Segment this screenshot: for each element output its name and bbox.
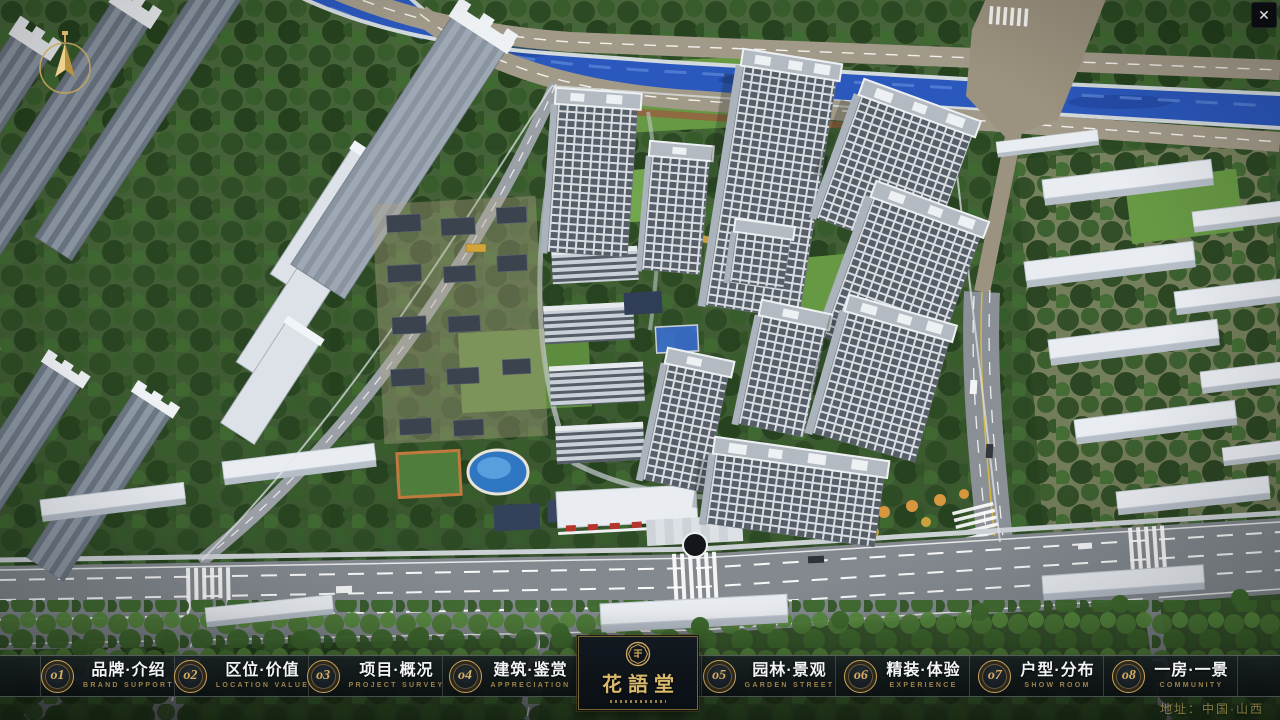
nav-label-en: LOCATION VALUE [216, 682, 309, 689]
nav-label-zh: 户型·分布 [1020, 663, 1094, 679]
nav-label-zh: 精装·体验 [886, 663, 960, 679]
nav-number: o3 [316, 668, 330, 684]
nav-item-garden-landscape[interactable]: o5 园林·景观GARDEN STREET [701, 656, 835, 696]
nav-item-architecture[interactable]: o4 建筑·鉴赏APPRECIATION [442, 656, 577, 696]
nav-label-en: APPRECIATION [491, 682, 571, 689]
nav-number: o2 [183, 668, 197, 684]
nav-number-badge: o1 [41, 660, 74, 693]
nav-number: o7 [988, 668, 1002, 684]
nav-label-en: PROJECT SURVEY [349, 682, 445, 689]
address-text: 地址：中国·山西 [1160, 700, 1264, 717]
nav-label-zh: 项目·概况 [359, 663, 433, 679]
logo-seal-icon [625, 641, 651, 667]
nav-item-interior-experience[interactable]: o6 精装·体验EXPERIENCE [835, 656, 969, 696]
close-button[interactable]: ✕ [1251, 2, 1277, 28]
nav-label-zh: 品牌·介绍 [91, 663, 165, 679]
nav-label-en: EXPERIENCE [889, 682, 957, 689]
nav-item-location-value[interactable]: o2 区位·价值LOCATION VALUE [174, 656, 308, 696]
nav-number-badge: o6 [844, 660, 877, 693]
nav-number-badge: o3 [307, 660, 340, 693]
masterplan-scene [0, 0, 1280, 720]
nav-label-zh: 园林·景观 [752, 663, 826, 679]
nav-label-en: COMMUNITY [1160, 682, 1224, 689]
nav-label-zh: 区位·价值 [225, 663, 299, 679]
logo-panel[interactable]: 花語堂 [578, 636, 698, 710]
nav-item-room-view[interactable]: o8 一房·一景COMMUNITY [1103, 656, 1238, 696]
logo-subtitle-glyphs [610, 700, 666, 703]
nav-number: o4 [458, 668, 472, 684]
nav-label-zh: 一房·一景 [1154, 663, 1228, 679]
nav-number: o5 [712, 668, 726, 684]
bottom-navbar: o1 品牌·介绍BRAND SUPPORT o2 区位·价值LOCATION V… [0, 655, 1280, 697]
nav-number-badge: o8 [1112, 660, 1145, 693]
nav-label-zh: 建筑·鉴赏 [493, 663, 567, 679]
nav-number: o6 [854, 668, 868, 684]
nav-number: o8 [1122, 668, 1136, 684]
nav-item-floorplan-distribution[interactable]: o7 户型·分布SHOW ROOM [969, 656, 1103, 696]
nav-item-brand-intro[interactable]: o1 品牌·介绍BRAND SUPPORT [40, 656, 174, 696]
nav-label-en: BRAND SUPPORT [83, 682, 174, 689]
nav-number-badge: o7 [978, 660, 1011, 693]
nav-number-badge: o5 [703, 660, 736, 693]
nav-label-en: SHOW ROOM [1024, 682, 1090, 689]
app-window: ✕ 地址：中国·山西 o1 品牌·介绍BRAND SUPPORT o2 区位·价… [0, 0, 1280, 720]
nav-number-badge: o4 [449, 660, 482, 693]
nav-label-en: GARDEN STREET [745, 682, 835, 689]
logo-title: 花語堂 [596, 668, 680, 697]
compass-north-icon [36, 30, 94, 98]
nav-number-badge: o2 [174, 660, 207, 693]
logo-slot: 花語堂 [577, 656, 701, 696]
nav-item-project-overview[interactable]: o3 项目·概况PROJECT SURVEY [308, 656, 442, 696]
nav-number: o1 [51, 668, 65, 684]
